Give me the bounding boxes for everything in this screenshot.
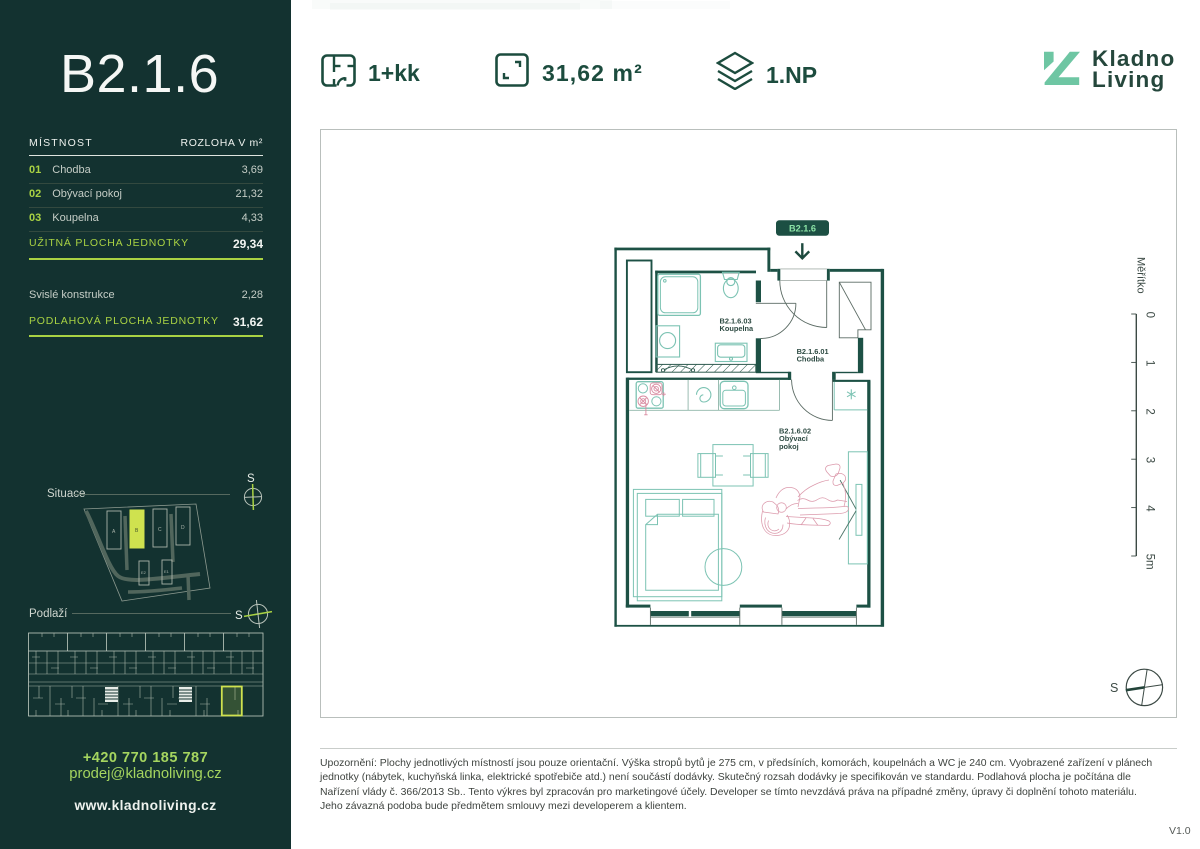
svg-text:0: 0 xyxy=(1144,312,1156,318)
svg-text:2: 2 xyxy=(1144,408,1156,414)
svg-text:S: S xyxy=(1110,681,1118,695)
svg-text:4: 4 xyxy=(1144,505,1156,512)
svg-text:5m: 5m xyxy=(1144,554,1156,570)
svg-text:pokoj: pokoj xyxy=(779,442,799,451)
svg-text:Koupelna: Koupelna xyxy=(720,324,755,333)
svg-text:Chodba: Chodba xyxy=(797,355,825,364)
svg-text:3: 3 xyxy=(1144,457,1156,463)
svg-text:B2.1.6: B2.1.6 xyxy=(789,223,816,233)
svg-text:Měřítko: Měřítko xyxy=(1135,257,1147,294)
svg-text:1: 1 xyxy=(1144,360,1156,366)
